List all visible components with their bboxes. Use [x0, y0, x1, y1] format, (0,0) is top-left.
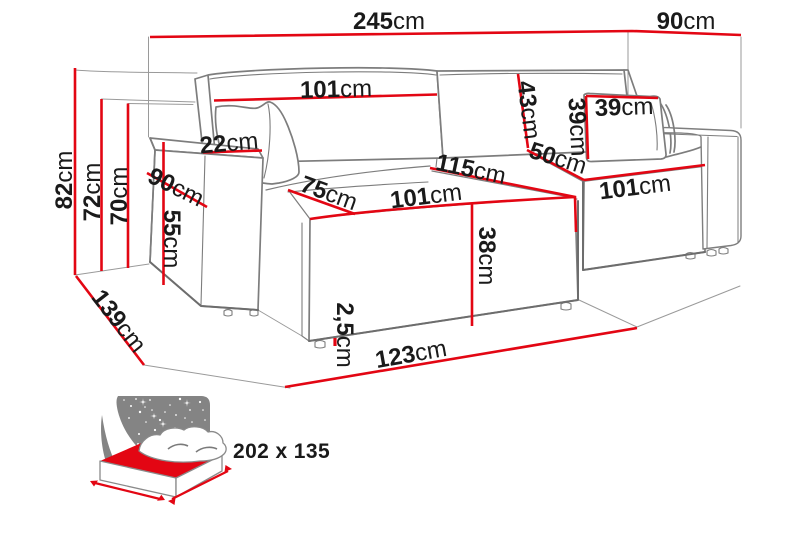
svg-text:22cm: 22cm: [199, 127, 260, 159]
svg-text:90cm: 90cm: [657, 8, 716, 35]
svg-text:72cm: 72cm: [79, 163, 106, 222]
svg-text:82cm: 82cm: [51, 151, 78, 210]
svg-text:39cm: 39cm: [594, 93, 654, 122]
svg-text:38cm: 38cm: [473, 227, 500, 286]
svg-text:70cm: 70cm: [106, 167, 133, 226]
svg-text:101cm: 101cm: [300, 75, 373, 104]
svg-text:55cm: 55cm: [158, 210, 185, 269]
svg-text:245cm: 245cm: [353, 8, 425, 35]
svg-text:202 x 135: 202 x 135: [233, 440, 330, 463]
svg-text:2,5cm: 2,5cm: [331, 302, 358, 367]
